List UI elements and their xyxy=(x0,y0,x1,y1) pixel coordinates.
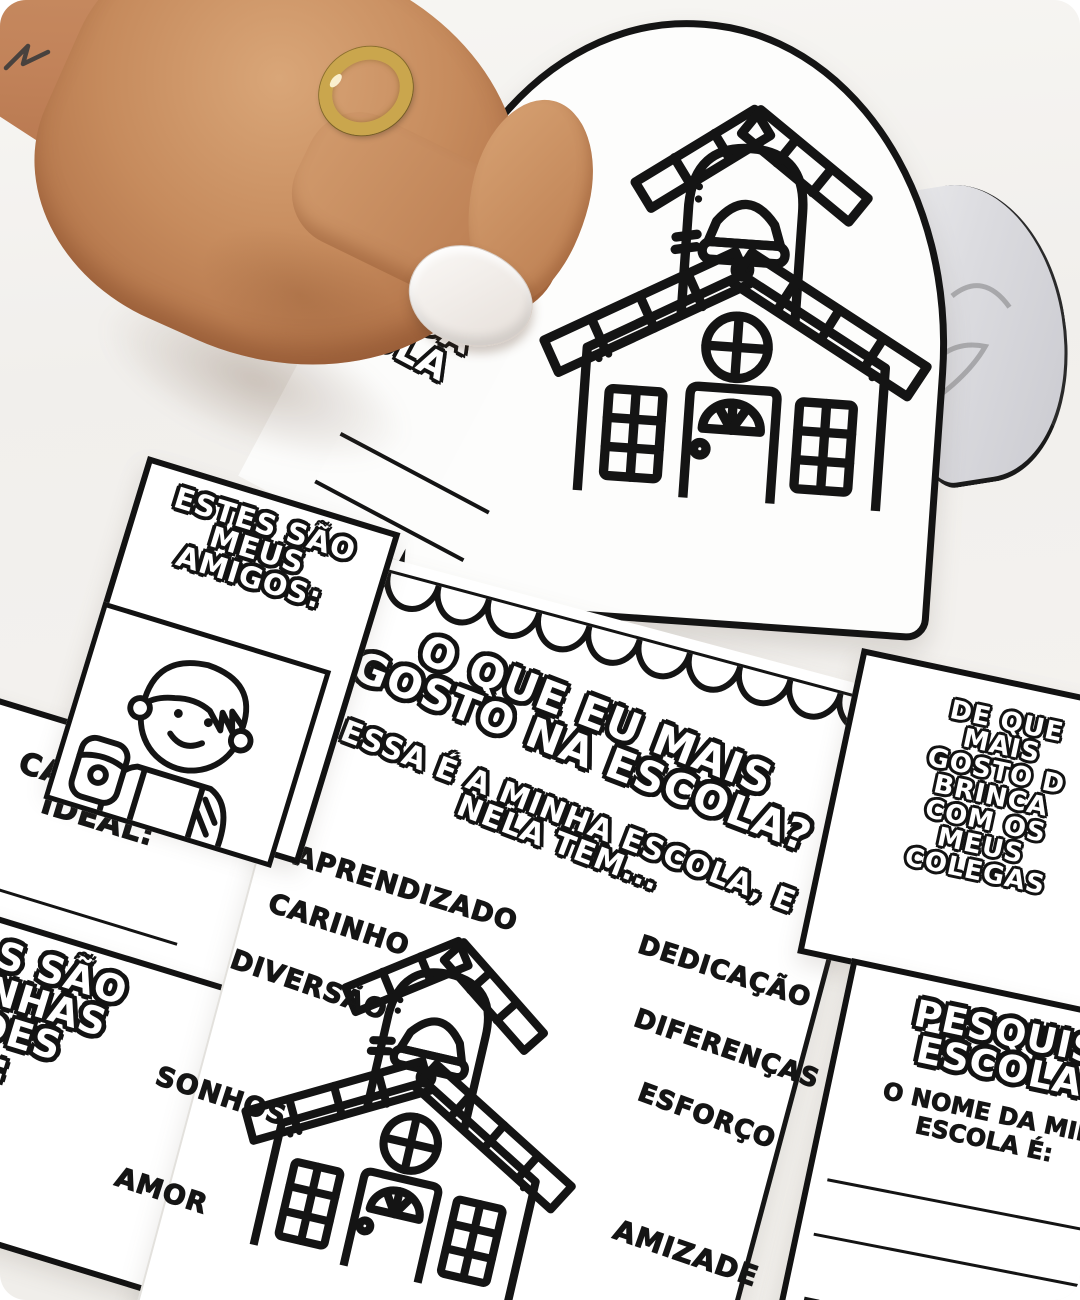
estou-na-label: ESTOU NA xyxy=(797,1291,960,1300)
write-line xyxy=(827,1178,1080,1237)
photo-scene: A DA OLA CARDÁPIO IDEAL: S SÃO NHAS DES … xyxy=(0,0,1080,1300)
write-line xyxy=(813,1233,1080,1292)
wrist-tattoo-icon xyxy=(2,28,62,78)
word-amizade: AMIZADE xyxy=(609,1213,763,1293)
word-esforco: ESFORÇO xyxy=(634,1078,780,1156)
word-diferencas: DIFERENÇAS xyxy=(630,1003,823,1095)
schoolhouse-icon xyxy=(201,880,635,1300)
